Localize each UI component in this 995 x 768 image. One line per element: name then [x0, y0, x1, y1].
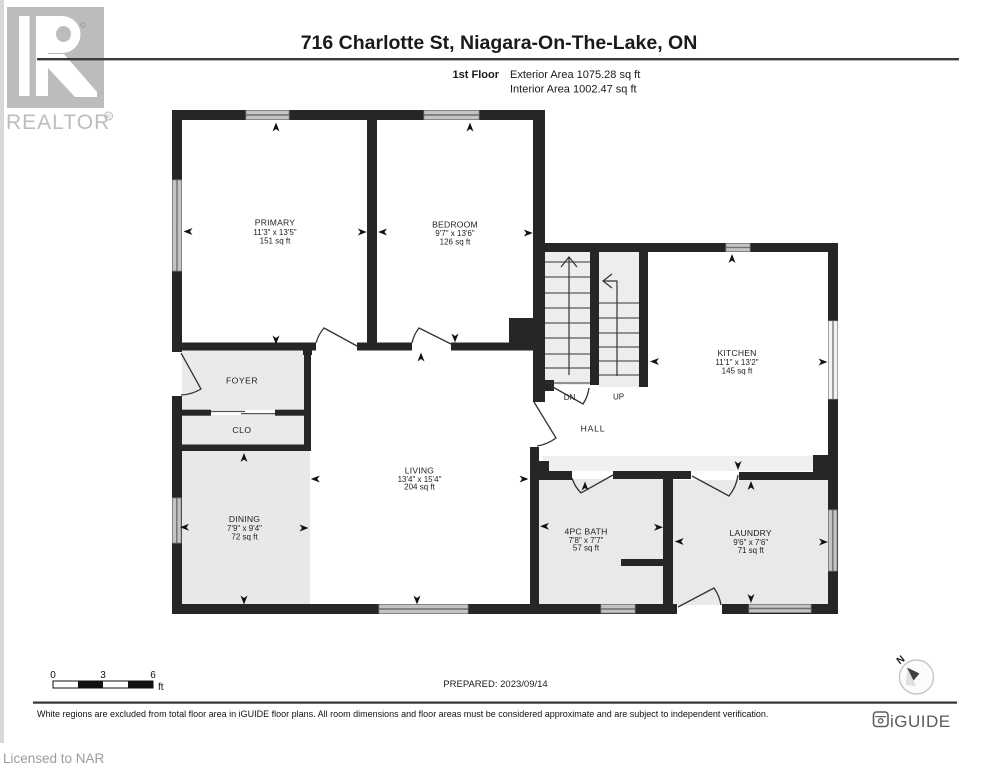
svg-text:126 sq ft: 126 sq ft — [440, 237, 471, 246]
svg-text:PREPARED: 2023/09/14: PREPARED: 2023/09/14 — [443, 679, 547, 690]
svg-text:DN: DN — [564, 393, 576, 402]
svg-text:Exterior Area 1075.28 sq ft: Exterior Area 1075.28 sq ft — [510, 69, 640, 81]
svg-text:0: 0 — [50, 670, 56, 681]
svg-text:204 sq ft: 204 sq ft — [404, 483, 435, 492]
svg-text:DINING: DINING — [229, 514, 260, 524]
svg-text:11'1" x 13'2": 11'1" x 13'2" — [715, 358, 758, 367]
svg-text:CLO: CLO — [232, 425, 251, 435]
svg-text:57 sq ft: 57 sq ft — [573, 544, 600, 553]
svg-text:Interior Area 1002.47 sq ft: Interior Area 1002.47 sq ft — [510, 84, 637, 96]
svg-text:iGUIDE: iGUIDE — [890, 712, 951, 731]
svg-text:145 sq ft: 145 sq ft — [722, 367, 753, 376]
svg-text:LAUNDRY: LAUNDRY — [730, 528, 772, 538]
svg-text:72 sq ft: 72 sq ft — [231, 532, 258, 541]
svg-text:PRIMARY: PRIMARY — [255, 217, 295, 227]
svg-text:11'3" x 13'5": 11'3" x 13'5" — [253, 228, 296, 237]
svg-text:White regions are excluded fro: White regions are excluded from total fl… — [37, 709, 768, 719]
svg-text:71 sq ft: 71 sq ft — [738, 546, 765, 555]
svg-text:Licensed to NAR: Licensed to NAR — [3, 751, 105, 766]
svg-text:R: R — [106, 114, 111, 121]
svg-text:BEDROOM: BEDROOM — [432, 219, 478, 229]
svg-text:151 sq ft: 151 sq ft — [260, 237, 291, 246]
svg-text:FOYER: FOYER — [226, 375, 258, 385]
svg-text:HALL: HALL — [581, 424, 606, 434]
svg-text:1st Floor: 1st Floor — [453, 69, 500, 81]
svg-text:3: 3 — [100, 670, 106, 681]
svg-text:KITCHEN: KITCHEN — [717, 348, 756, 358]
svg-text:716 Charlotte St, Niagara-On-T: 716 Charlotte St, Niagara-On-The-Lake, O… — [301, 32, 698, 54]
svg-text:ft: ft — [158, 682, 164, 693]
svg-text:REALTOR: REALTOR — [6, 111, 110, 134]
svg-text:UP: UP — [613, 393, 624, 402]
svg-text:6: 6 — [150, 670, 156, 681]
